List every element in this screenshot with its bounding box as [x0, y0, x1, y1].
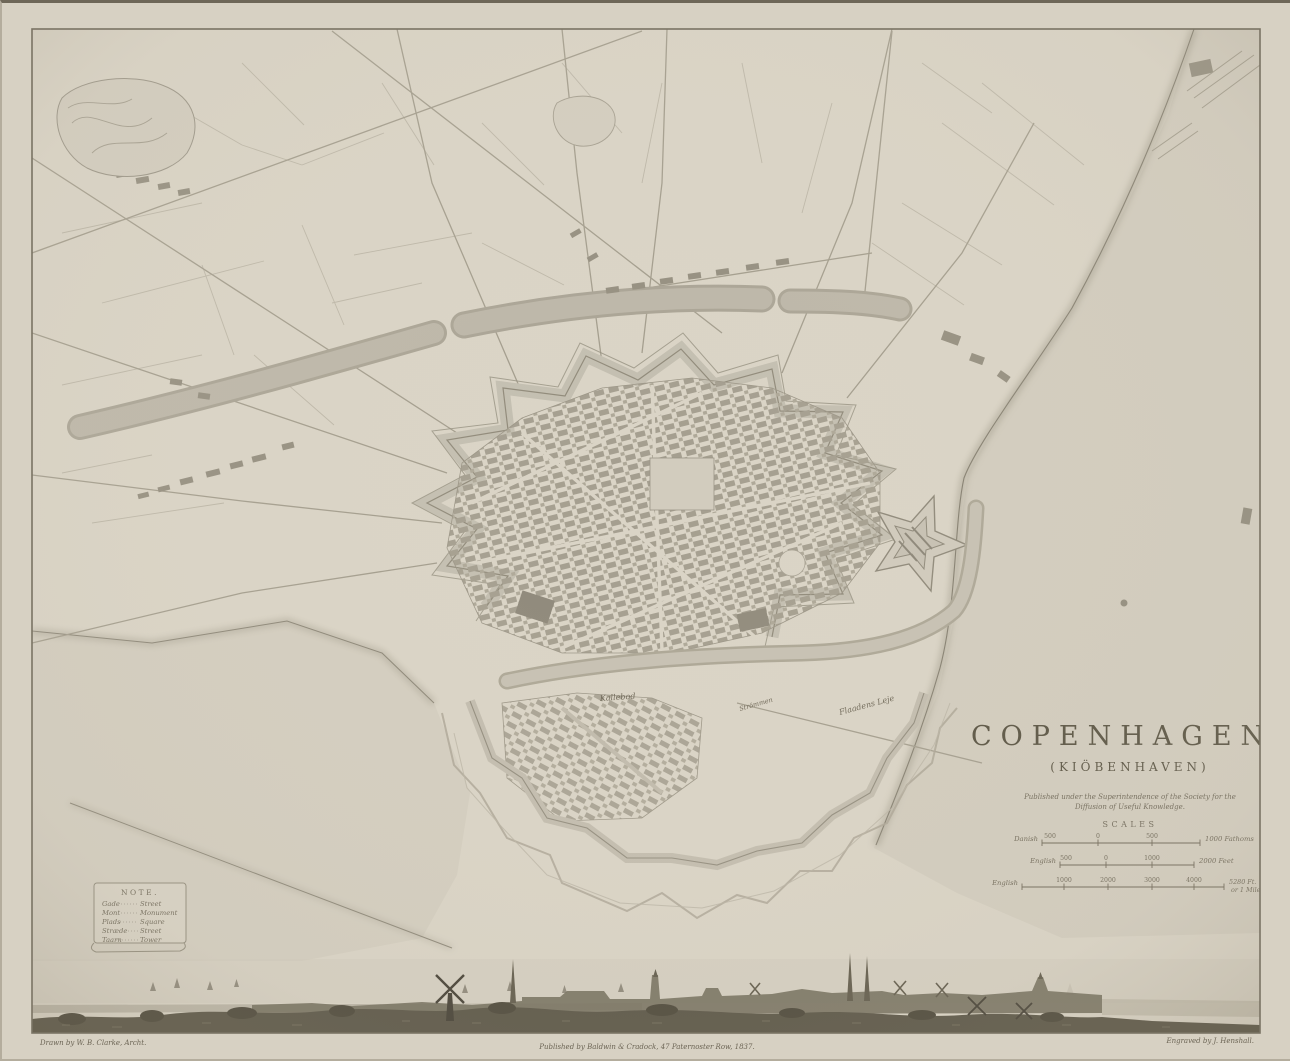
- copenhagen-map-engraving: NOTE. Gade Street Mont Monument Plads Sq…: [2, 3, 1290, 1059]
- credit-engraver: Engraved by J. Henshall.: [1165, 1037, 1254, 1045]
- credit-publisher: Published by Baldwin & Cradock, 47 Pater…: [538, 1043, 754, 1051]
- tone-overlay: [32, 29, 1260, 1033]
- antique-map-print: NOTE. Gade Street Mont Monument Plads Sq…: [0, 0, 1290, 1061]
- credit-drawn-by: Drawn by W. B. Clarke, Archt.: [39, 1039, 146, 1047]
- map-area: NOTE. Gade Street Mont Monument Plads Sq…: [32, 29, 1289, 1033]
